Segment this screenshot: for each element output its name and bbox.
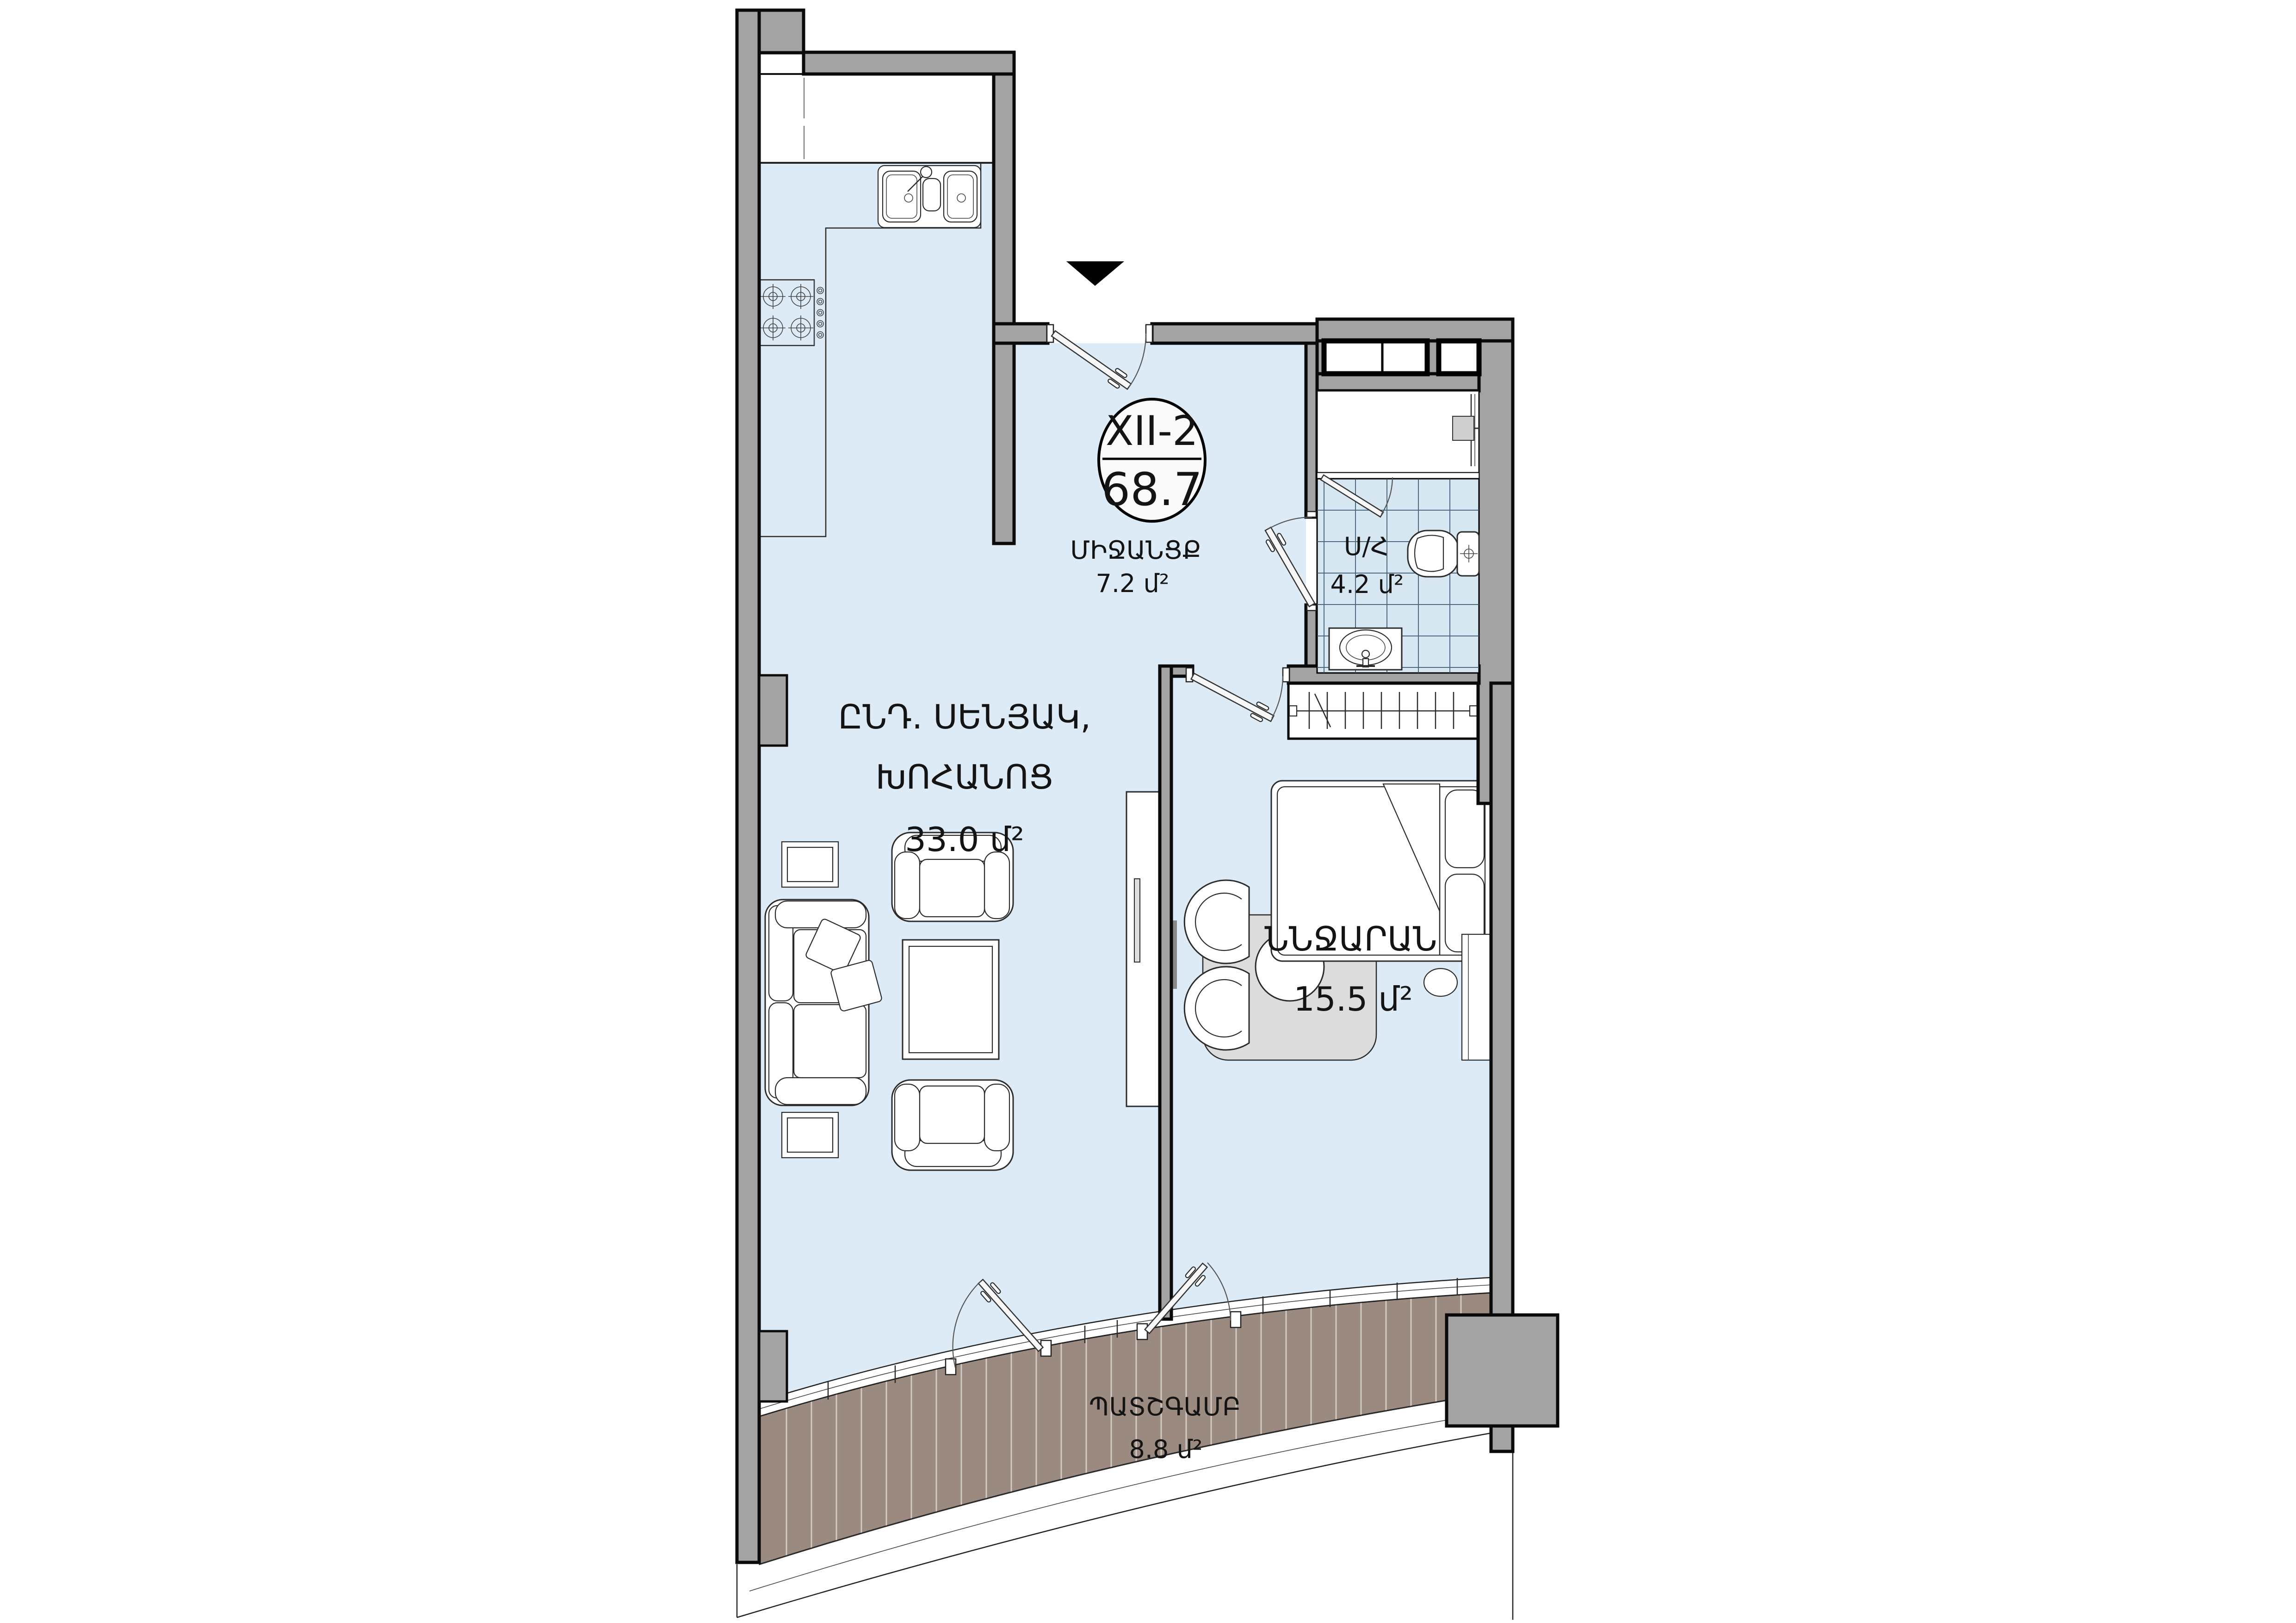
toilet-icon xyxy=(1408,531,1479,577)
armchair-icon xyxy=(892,1080,1013,1170)
bathroom-zone xyxy=(1317,341,1479,673)
kitchen-sink-icon xyxy=(878,166,981,228)
wall-pilaster xyxy=(759,1331,787,1401)
coffee-table-icon xyxy=(903,940,999,1059)
living-label-line1: ԸՆԴ. ՍԵՆՅԱԿ, xyxy=(838,697,1091,736)
apartment-floor xyxy=(759,74,1491,1416)
bedroom-area: 15.5 մ² xyxy=(1293,980,1413,1018)
unit-badge: XII-2 68.7 xyxy=(1099,399,1205,521)
living-label-line2: ԽՈՀԱՆՈՑ xyxy=(876,758,1054,796)
desk-icon xyxy=(1462,934,1491,1060)
wall-left xyxy=(737,10,759,1562)
wall-entry-left-stub xyxy=(994,324,1048,343)
side-table-icon xyxy=(782,1112,838,1158)
bathroom-label: Ս/Հ xyxy=(1344,532,1388,561)
wall-below-shafts xyxy=(1317,374,1479,391)
wardrobe-icon xyxy=(1288,683,1478,739)
tv-console-icon xyxy=(1126,792,1159,1106)
wall-bathroom-left-upper xyxy=(1306,343,1317,517)
vent-shaft xyxy=(1324,341,1427,374)
balcony-area: 8.8 մ² xyxy=(1129,1435,1203,1464)
wall-pilaster xyxy=(759,675,787,746)
balcony-label: ՊԱՏՇԳԱՄԲ xyxy=(1089,1392,1241,1421)
sofa-icon xyxy=(765,900,882,1105)
kitchen-upper-cabinets xyxy=(759,74,994,163)
wall-partition xyxy=(1160,666,1171,1319)
bathroom-area: 4.2 մ² xyxy=(1331,570,1404,599)
floor-plan-page: XII-2 68.7 ՄԻՋԱՆՑՔ 7.2 մ² ԸՆԴ. ՍԵՆՅԱԿ, Խ… xyxy=(0,0,2296,1623)
wall-top-kitchen xyxy=(804,52,1014,74)
bedroom-label: ՆՆՋԱՐԱՆ xyxy=(1264,919,1437,958)
wall-column-block xyxy=(1447,1315,1558,1426)
wall-top-right-band xyxy=(1317,319,1513,341)
badge-unit-number: XII-2 xyxy=(1106,407,1198,455)
wall-entry-right xyxy=(1152,324,1317,343)
living-area: 33.0 մ² xyxy=(905,820,1024,859)
washbasin-icon xyxy=(1329,628,1402,670)
shower-threshold xyxy=(1317,473,1479,479)
corridor-area: 7.2 մ² xyxy=(1096,569,1170,598)
corridor-label: ՄԻՋԱՆՑՔ xyxy=(1070,536,1201,565)
side-table-icon xyxy=(782,842,838,887)
entrance-arrow-icon xyxy=(1066,261,1124,286)
vent-shaft xyxy=(1439,341,1479,374)
badge-total-area: 68.7 xyxy=(1102,463,1202,516)
stool-icon xyxy=(1424,969,1457,996)
wall-kitchen-entry xyxy=(994,74,1014,543)
floor-plan: XII-2 68.7 ՄԻՋԱՆՑՔ 7.2 մ² ԸՆԴ. ՍԵՆՅԱԿ, Խ… xyxy=(0,0,2296,1623)
